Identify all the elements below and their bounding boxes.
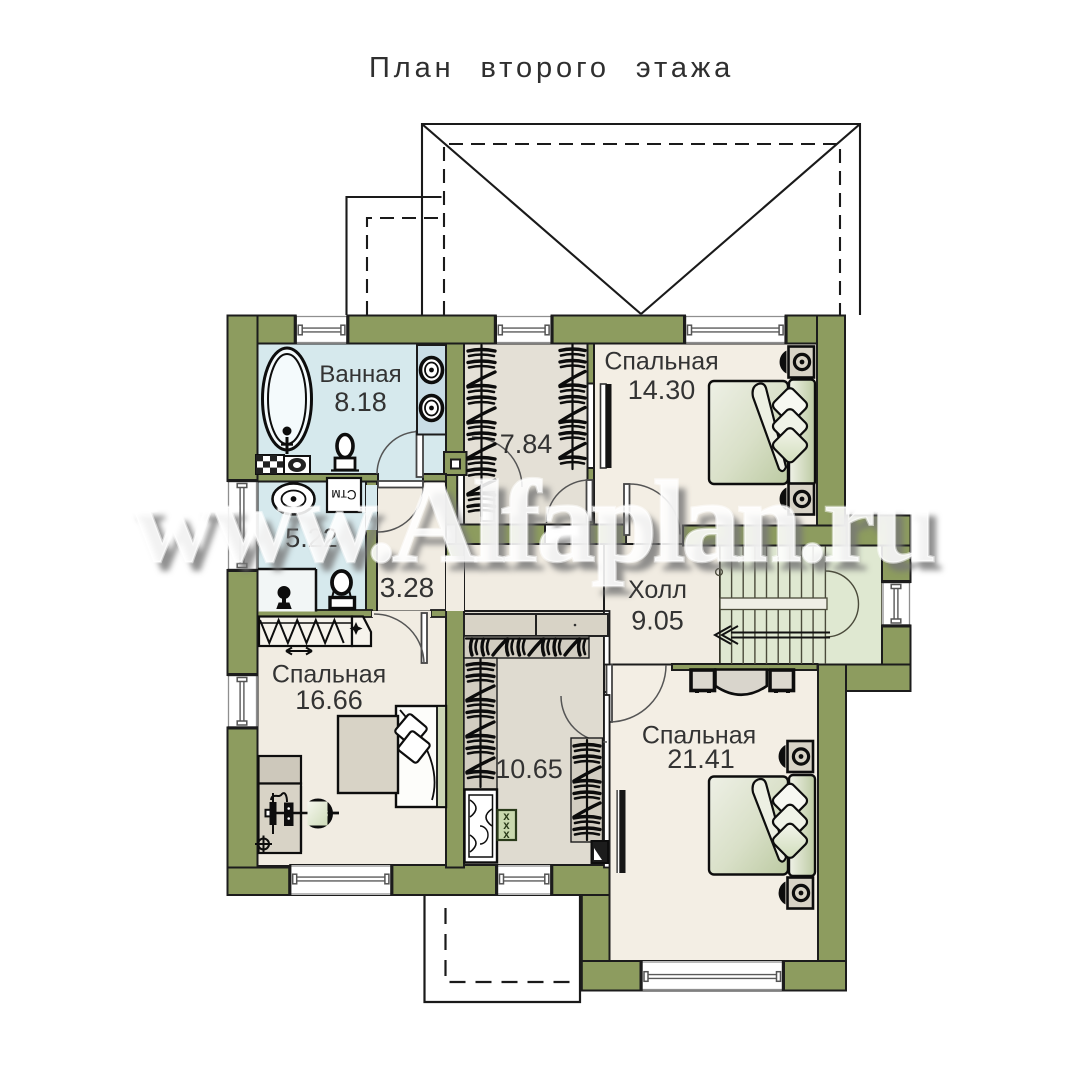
svg-text:Спальная: Спальная — [604, 348, 718, 376]
svg-text:16.66: 16.66 — [295, 685, 363, 715]
svg-text:9.05: 9.05 — [631, 606, 684, 636]
svg-text:x: x — [503, 829, 510, 841]
svg-text:План второго этажа: План второго этажа — [369, 52, 734, 84]
svg-text:21.41: 21.41 — [667, 744, 735, 774]
svg-text:14.30: 14.30 — [628, 375, 696, 405]
svg-text:7.84: 7.84 — [500, 429, 553, 459]
svg-text:10.65: 10.65 — [495, 754, 563, 784]
svg-text:8.18: 8.18 — [334, 387, 387, 417]
svg-text:Ванная: Ванная — [319, 361, 401, 388]
